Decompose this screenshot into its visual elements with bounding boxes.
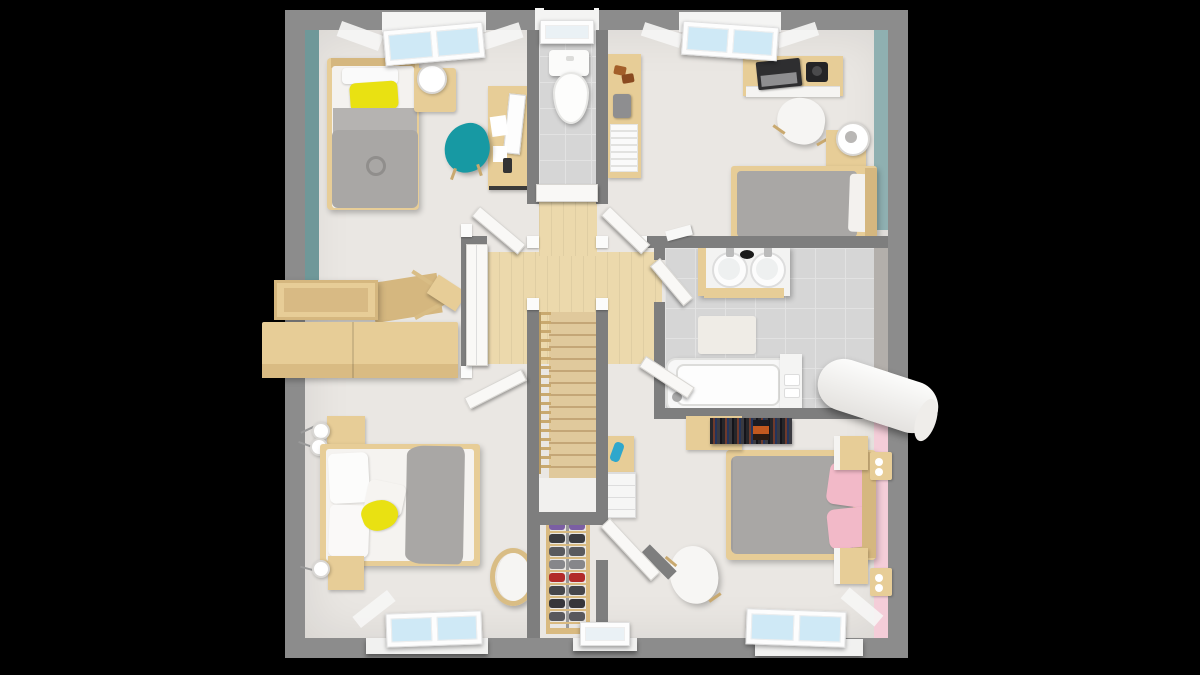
staircase-steps [549,312,597,478]
bath-mat [698,316,756,354]
door-frame [596,298,608,310]
wall-shelf-2-knobs [875,574,883,582]
shoe-pair [569,547,585,556]
stairwell-south-wall [527,512,608,525]
wooden-chest-front-shade [262,364,458,378]
shoe-rack-rail [547,531,589,533]
bathroom-west-wall-lower [654,302,665,418]
stair-lower-landing [539,478,597,514]
roof-window-top-right [681,21,779,62]
wall-shelf-2 [870,568,892,596]
floorplan-stage [0,0,1200,675]
bed-pillow-bl-1 [328,452,371,504]
bed-headboard-top-right [865,168,877,238]
shoe-pair [569,599,585,608]
table-lamp [417,64,447,94]
window-pane [732,29,774,56]
shoe-pair [569,612,585,621]
window-pane [436,616,477,641]
bathroom-west-wall-upper [654,236,665,260]
door-frame [461,366,472,378]
shoe-pair [549,560,565,569]
nightstand-br-top [834,436,868,470]
window-pane [388,31,433,61]
window-pane [798,615,841,642]
smartphone [503,158,512,173]
wall-shelf-1-knobs [875,458,883,466]
stairwell-west-wall [527,308,539,512]
door-frame [596,236,608,248]
window-pane [751,613,794,640]
camera-gray [613,94,631,118]
bathroom-north-wall [645,236,888,248]
duvet-clip [366,156,386,176]
wooden-chest-seam [352,322,354,378]
roof-window-wc [540,20,594,44]
closet-west-wall [527,525,540,638]
vanity-wood-shelf [704,288,784,298]
door-open-flat-west [466,244,488,366]
nightstand-br-bottom [834,548,868,584]
staircase-railing [539,312,551,474]
faucet-right [764,247,772,257]
shoe-pair [549,586,565,595]
shoe-pair [569,534,585,543]
double-bed-duvet-top-right [737,171,857,237]
window-pane [585,627,625,641]
window-pane [686,26,728,53]
door-frame [527,298,539,310]
door-frame [527,236,539,248]
shoe-pair [549,599,565,608]
book-stack [610,124,638,172]
paper-sheet [490,115,509,137]
wall-shelf-1 [870,452,892,480]
media-shelf-dvd-art [753,420,769,440]
round-chair-cushion [497,553,530,601]
window-pane [391,617,432,642]
outer-wall-right [888,10,908,658]
dormer-roof-notch [544,0,594,10]
sink-left-basin [718,258,740,280]
stairwell-east-wall [596,308,608,512]
window-pane [545,25,589,39]
faucet-left [726,247,734,257]
gray-throw [405,446,465,565]
door-wc [536,184,598,202]
shoe-pair [569,560,585,569]
teal-accent-wall-top-left [305,30,319,282]
shoe-rack-rows [546,521,590,627]
drawer-unit [604,472,636,518]
soap-bottle-2 [784,388,800,398]
window-bottom-right [745,608,846,647]
wall-lamp-ball-3 [312,560,330,578]
desk-leg-bar [489,186,531,190]
window-closet [580,622,630,646]
nightstand-bl-bottom [328,556,364,590]
vanity-black-dish [740,250,754,259]
yellow-pillow [349,80,399,111]
shoe-rack-rail [547,609,589,611]
pink-accent-wall-bottom-right [874,418,888,638]
soap-bottle [784,374,800,386]
window-pane [435,27,480,57]
media-shelf-books [710,418,792,444]
camera-lens [812,66,822,76]
shoe-rack-rail [547,557,589,559]
open-storage-box-interior [284,288,368,312]
wc-west-wall [527,30,539,204]
shoe-pair [549,612,565,621]
window-bottom-left [385,610,482,647]
toilet-flush-button [566,56,574,61]
wc-east-wall [596,30,608,204]
shoe-pair [569,586,585,595]
shoe-rack-rail [547,583,589,585]
shoe-pair [549,534,565,543]
shoe-pair [549,547,565,556]
door-frame [461,224,472,237]
shoe-pair [549,573,565,582]
shoe-rack-rail [547,544,589,546]
shoe-pair [569,573,585,582]
cylinder-lamp-inner [845,131,857,143]
sink-right-basin [756,258,778,280]
shoe-rack-rail [547,596,589,598]
shoe-rack-rail [547,570,589,572]
